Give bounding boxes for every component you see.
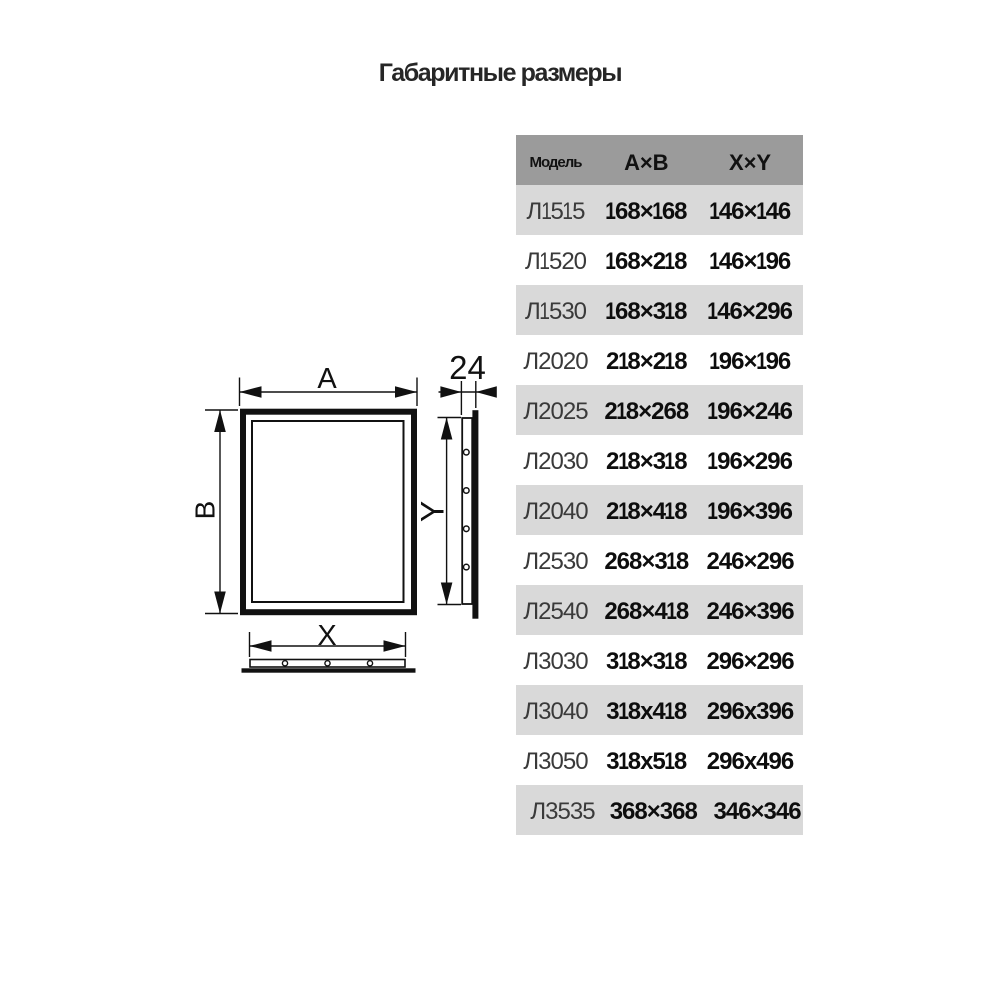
svg-text:X: X <box>317 620 336 652</box>
svg-text:A: A <box>317 363 337 395</box>
svg-text:Y: Y <box>415 501 451 522</box>
svg-text:24: 24 <box>449 349 486 386</box>
svg-text:B: B <box>190 501 221 520</box>
